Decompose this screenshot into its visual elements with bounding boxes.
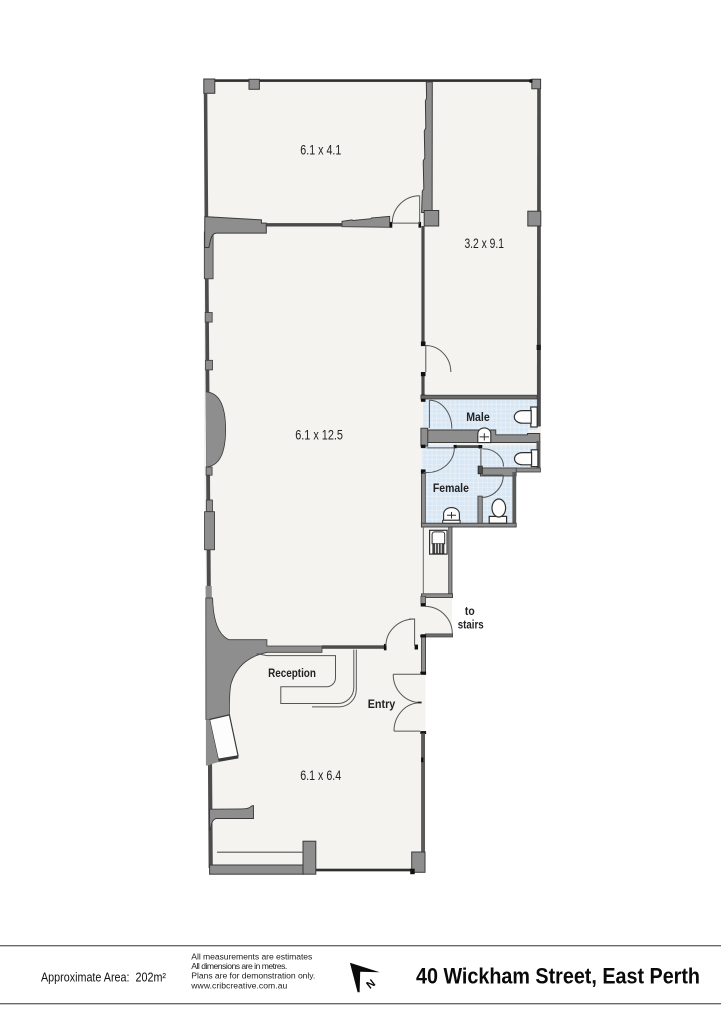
svg-text:Approximate Area: 202m²: Approximate Area: 202m²: [41, 969, 167, 984]
svg-text:to: to: [465, 606, 475, 618]
svg-text:Entry: Entry: [368, 699, 396, 711]
svg-text:All dimensions are in metres.: All dimensions are in metres.: [191, 961, 287, 971]
svg-text:6.1 x 4.1: 6.1 x 4.1: [300, 141, 341, 157]
svg-text:Plans are for demonstration on: Plans are for demonstration only.: [191, 971, 315, 981]
svg-text:All measurements are estimates: All measurements are estimates: [191, 951, 312, 961]
svg-text:6.1 x 12.5: 6.1 x 12.5: [295, 426, 343, 442]
svg-text:N: N: [364, 977, 378, 991]
svg-text:3.2 x 9.1: 3.2 x 9.1: [464, 235, 504, 251]
svg-text:40 Wickham Street, East Perth: 40 Wickham Street, East Perth: [416, 963, 700, 988]
svg-text:6.1 x 6.4: 6.1 x 6.4: [300, 767, 341, 783]
svg-text:Male: Male: [466, 412, 490, 424]
svg-text:Female: Female: [433, 481, 469, 495]
svg-text:Reception: Reception: [268, 668, 316, 680]
svg-text:stairs: stairs: [458, 620, 484, 632]
svg-text:www.cribcreative.com.au: www.cribcreative.com.au: [190, 980, 287, 990]
